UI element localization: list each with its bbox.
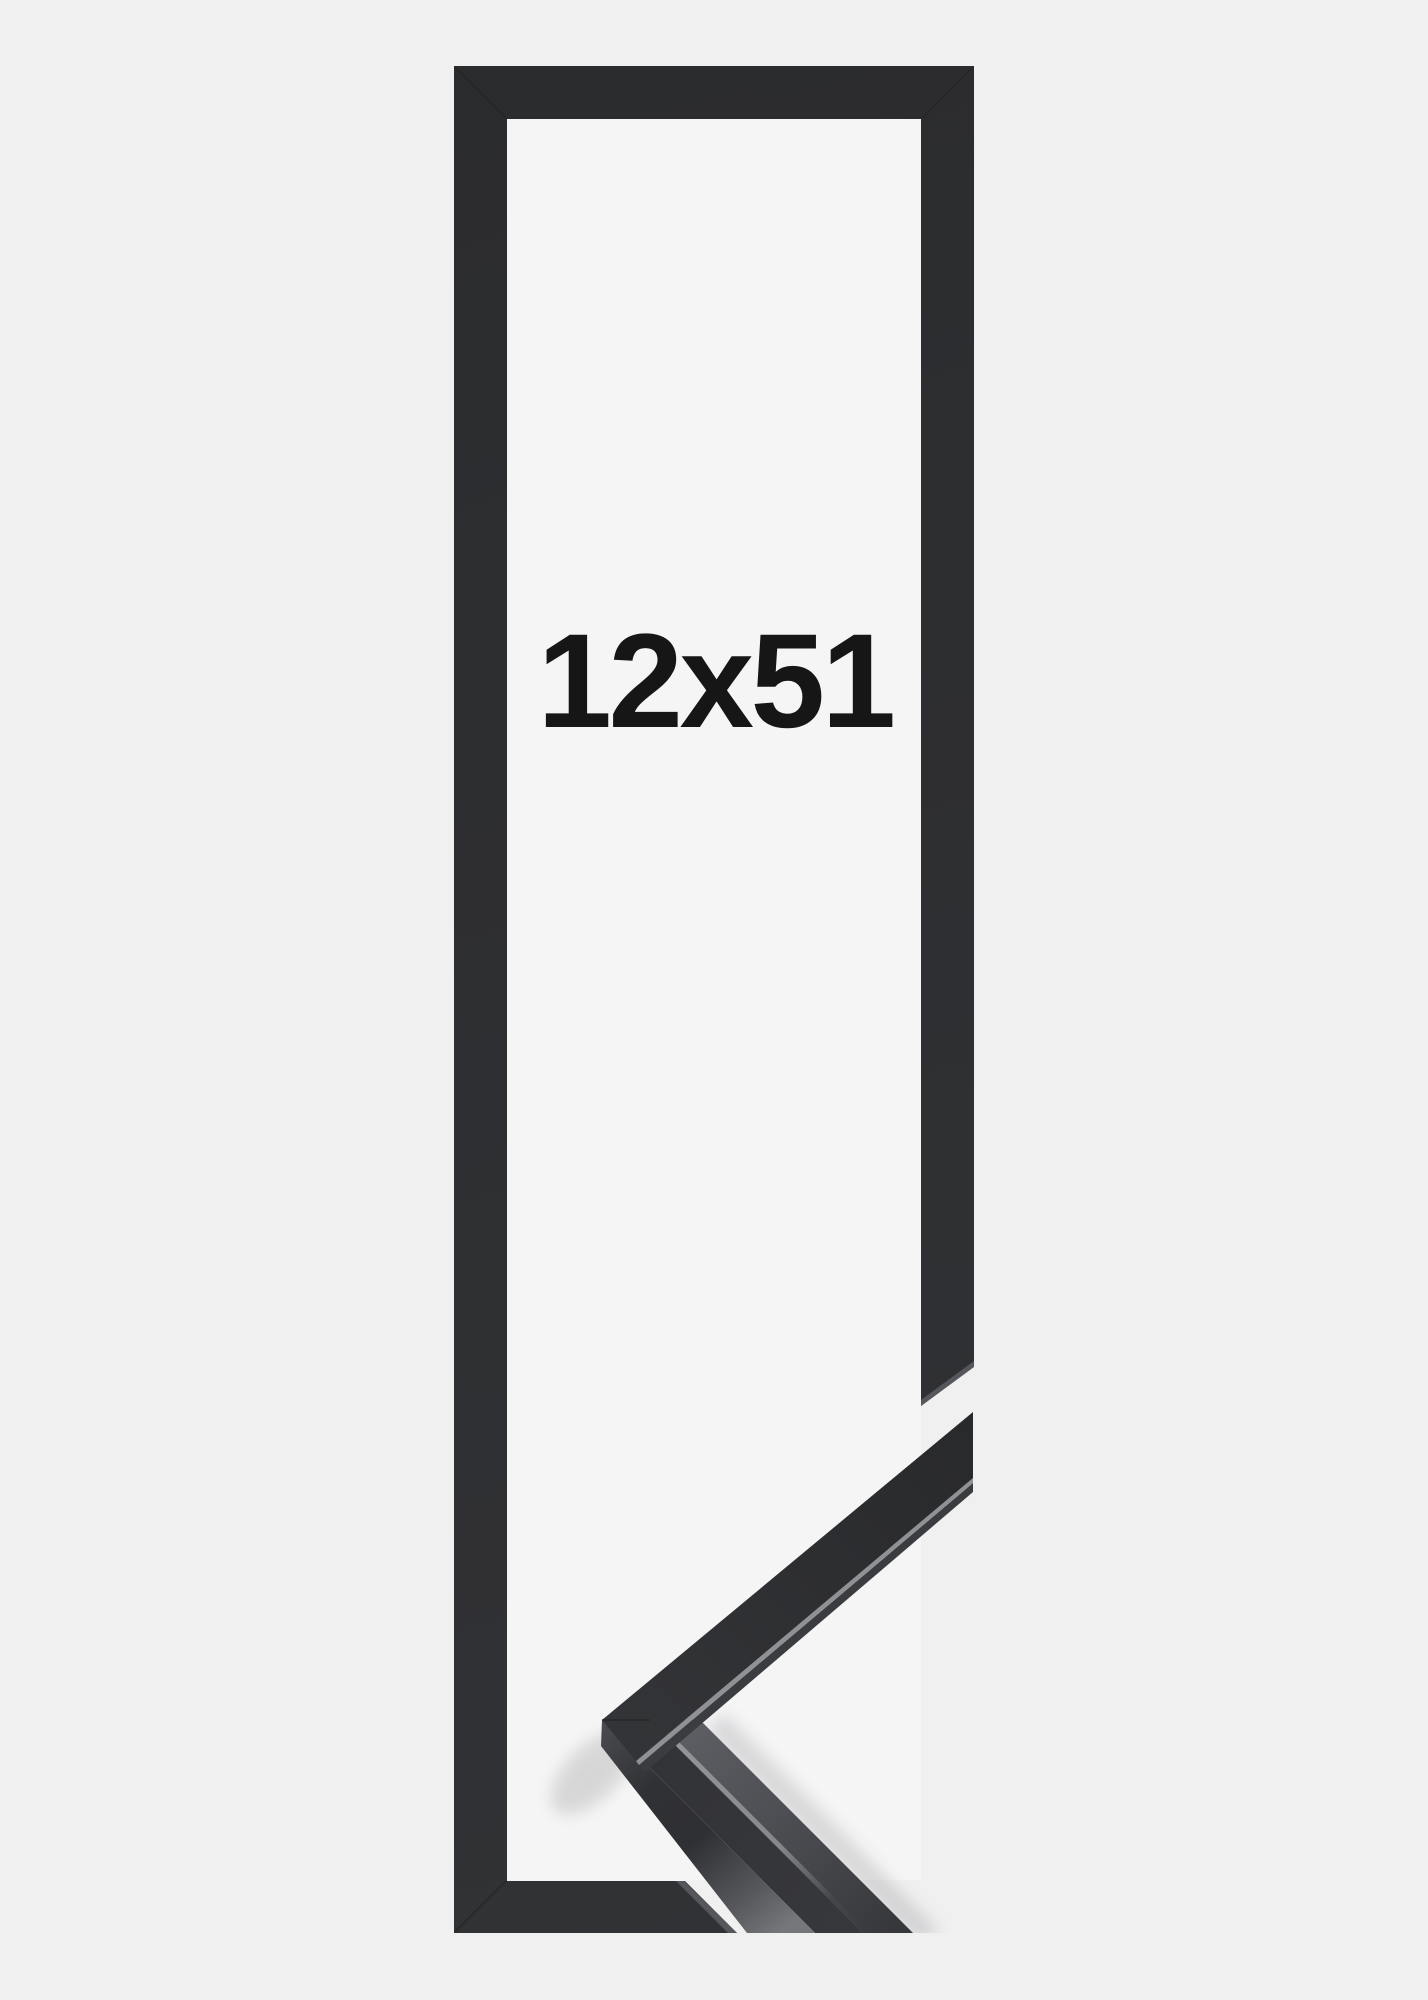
size-label: 12x51 — [537, 607, 892, 756]
product-image: 12x51 — [0, 0, 1428, 2000]
frame-opening — [507, 119, 921, 1881]
frame-product-photo: 12x51 — [0, 0, 1428, 2000]
